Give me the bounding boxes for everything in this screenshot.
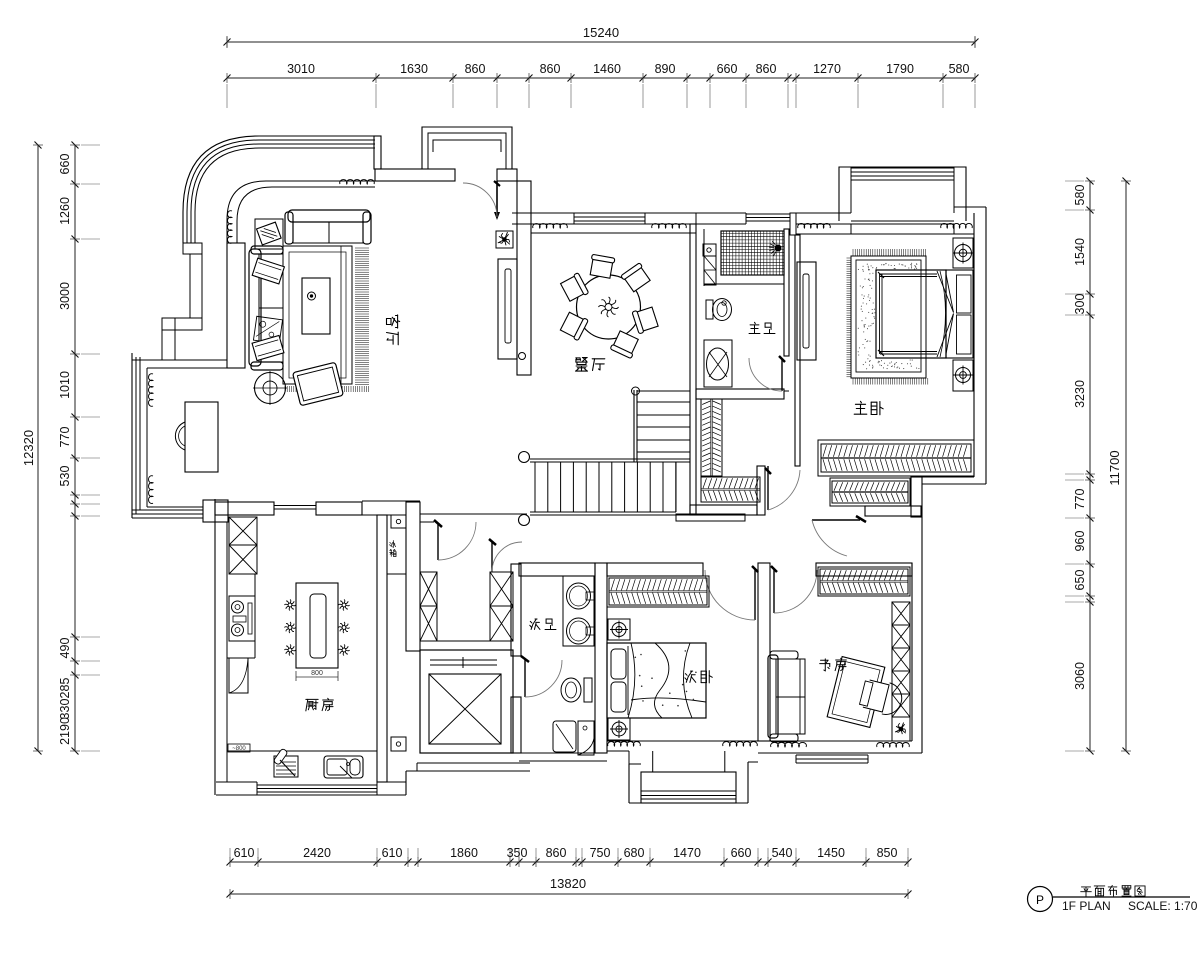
svg-text:300: 300 — [1073, 294, 1087, 315]
svg-text:800: 800 — [311, 670, 323, 677]
svg-text:530: 530 — [58, 466, 72, 487]
svg-text:680: 680 — [624, 846, 645, 860]
svg-text:1540: 1540 — [1073, 238, 1087, 266]
svg-text:1450: 1450 — [817, 846, 845, 860]
svg-text:770: 770 — [1073, 489, 1087, 510]
svg-text:12320: 12320 — [21, 430, 36, 466]
svg-text:3010: 3010 — [287, 62, 315, 76]
svg-text:3230: 3230 — [1073, 380, 1087, 408]
svg-text:330: 330 — [58, 699, 72, 720]
svg-text:860: 860 — [756, 62, 777, 76]
svg-text:1630: 1630 — [400, 62, 428, 76]
svg-text:850: 850 — [877, 846, 898, 860]
svg-text:1470: 1470 — [673, 846, 701, 860]
svg-text:580: 580 — [949, 62, 970, 76]
svg-text:610: 610 — [382, 846, 403, 860]
svg-text:1790: 1790 — [886, 62, 914, 76]
svg-text:2420: 2420 — [303, 846, 331, 860]
svg-text:660: 660 — [58, 154, 72, 175]
svg-text:11700: 11700 — [1107, 450, 1122, 485]
svg-text:1F PLAN: 1F PLAN — [1062, 899, 1111, 913]
svg-text:13820: 13820 — [550, 876, 586, 891]
svg-text:860: 860 — [546, 846, 567, 860]
svg-text:650: 650 — [1073, 570, 1087, 591]
svg-text:SCALE: 1:70: SCALE: 1:70 — [1128, 899, 1198, 913]
svg-text:580: 580 — [1073, 185, 1087, 206]
svg-text:540: 540 — [772, 846, 793, 860]
svg-text:490: 490 — [58, 638, 72, 659]
svg-text:2190: 2190 — [58, 717, 72, 745]
svg-text:P: P — [1036, 893, 1044, 907]
svg-text:1460: 1460 — [593, 62, 621, 76]
svg-text:860: 860 — [465, 62, 486, 76]
svg-text:1860: 1860 — [450, 846, 478, 860]
svg-text:610: 610 — [234, 846, 255, 860]
svg-text:1270: 1270 — [813, 62, 841, 76]
svg-text:350: 350 — [507, 846, 528, 860]
svg-text:750: 750 — [590, 846, 611, 860]
svg-text:860: 860 — [540, 62, 561, 76]
svg-text:3000: 3000 — [58, 282, 72, 310]
svg-text:660: 660 — [717, 62, 738, 76]
svg-text:3060: 3060 — [1073, 662, 1087, 690]
svg-text:960: 960 — [1073, 531, 1087, 552]
svg-text:1010: 1010 — [58, 371, 72, 399]
svg-text:770: 770 — [58, 427, 72, 448]
svg-text:15240: 15240 — [583, 25, 619, 40]
svg-text:1260: 1260 — [58, 197, 72, 225]
svg-text:890: 890 — [655, 62, 676, 76]
svg-text:660: 660 — [731, 846, 752, 860]
svg-text:285: 285 — [58, 678, 72, 699]
